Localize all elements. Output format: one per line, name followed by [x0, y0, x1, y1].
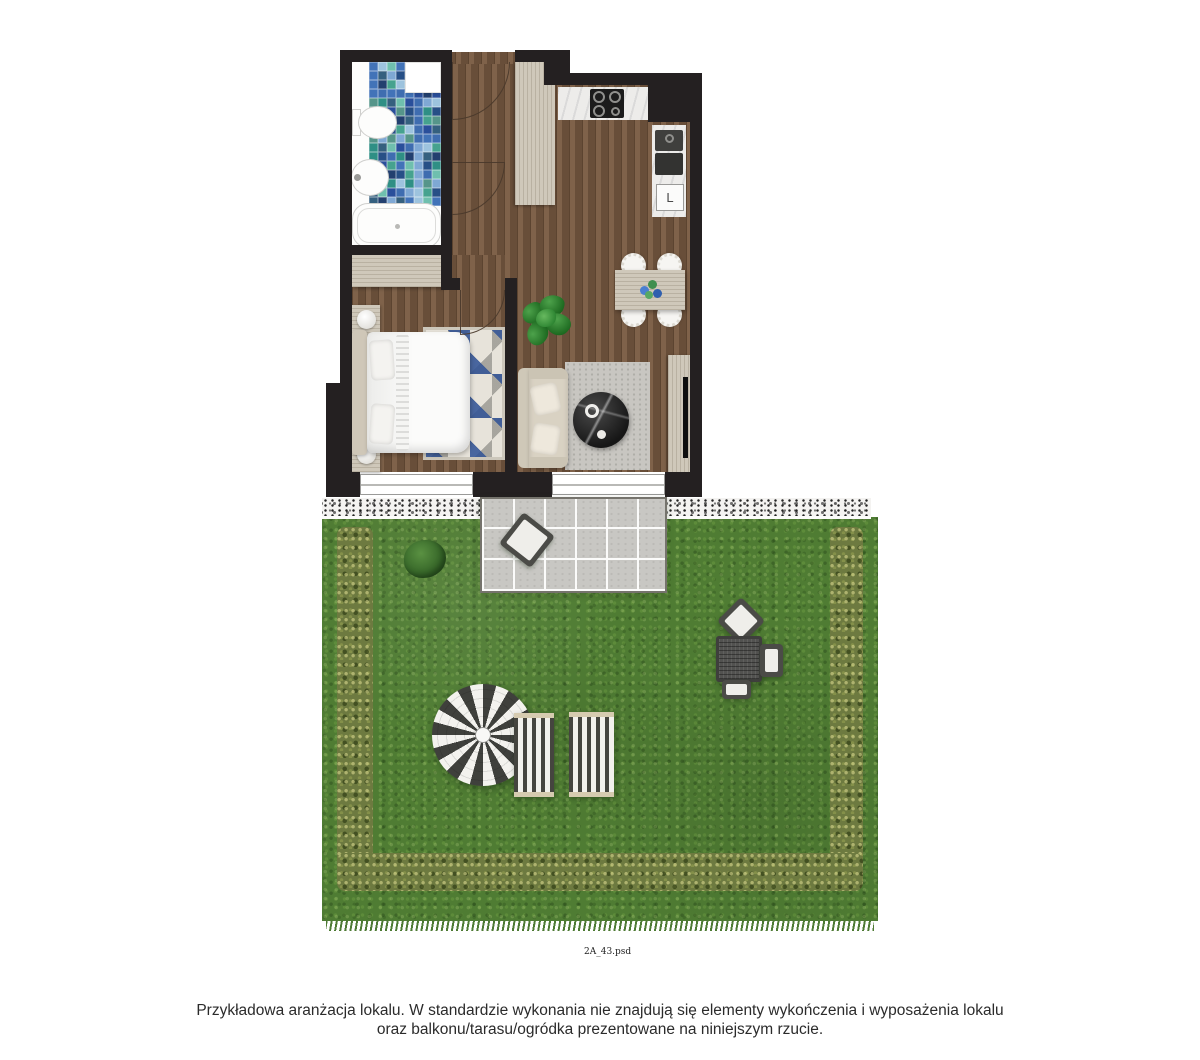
monstera-plant	[522, 295, 570, 347]
toilet-bowl	[358, 106, 397, 139]
mosaic-tile	[414, 134, 423, 143]
mosaic-tile	[387, 89, 396, 98]
burner	[593, 91, 605, 103]
kitchen-corner-cabinet	[648, 85, 690, 122]
mosaic-tile	[414, 179, 423, 188]
page: L	[0, 0, 1200, 1060]
hedge-left	[337, 527, 373, 885]
mosaic-tile	[369, 62, 378, 71]
wall-bath-bottom	[340, 245, 441, 255]
mosaic-tile	[396, 143, 405, 152]
mosaic-tile	[405, 143, 414, 152]
kitchen-faucet	[665, 134, 674, 143]
garden-chair-cushion	[765, 649, 778, 672]
bed-headboard	[352, 330, 367, 455]
garden-chair-bottom	[722, 680, 751, 699]
mosaic-tile	[378, 89, 387, 98]
garden-chair-cushion	[726, 684, 747, 695]
bed-ruffle	[396, 334, 409, 451]
deck-chair-left	[514, 713, 554, 797]
mosaic-tile	[369, 80, 378, 89]
sofa-pillow-bottom	[530, 422, 561, 456]
mosaic-tile	[369, 143, 378, 152]
mosaic-tile	[396, 170, 405, 179]
umbrella-center	[475, 727, 491, 743]
mosaic-tile	[396, 188, 405, 197]
mosaic-tile	[423, 107, 432, 116]
fridge: L	[656, 184, 684, 211]
mosaic-tile	[423, 188, 432, 197]
wall-top-kitchen	[556, 73, 702, 85]
mosaic-tile	[423, 125, 432, 134]
mosaic-tile	[405, 98, 414, 107]
mosaic-tile	[414, 170, 423, 179]
mosaic-tile	[432, 125, 441, 134]
mosaic-tile	[414, 188, 423, 197]
mosaic-tile	[396, 89, 405, 98]
washing-machine	[405, 62, 441, 93]
mosaic-tile	[414, 152, 423, 161]
mosaic-tile	[396, 107, 405, 116]
sofa-armrest-top	[529, 368, 568, 379]
wall-left-bump	[326, 383, 342, 478]
mosaic-tile	[423, 143, 432, 152]
wall-bath-divider	[441, 50, 452, 290]
mosaic-tile	[387, 152, 396, 161]
table-flowers	[638, 278, 664, 302]
mosaic-tile	[396, 116, 405, 125]
mosaic-tile	[432, 134, 441, 143]
coffee-table-tray	[585, 404, 599, 418]
garden-table	[716, 636, 762, 682]
gravel-strip-left	[322, 498, 480, 519]
mosaic-tile	[432, 152, 441, 161]
mosaic-tile	[396, 71, 405, 80]
mosaic-tile	[387, 98, 396, 107]
mosaic-tile	[423, 161, 432, 170]
mosaic-tile	[423, 152, 432, 161]
mosaic-tile	[396, 134, 405, 143]
mosaic-tile	[423, 98, 432, 107]
mosaic-tile	[396, 80, 405, 89]
disclaimer-line-2: oraz balkonu/tarasu/ogródka prezentowane…	[0, 1020, 1200, 1039]
disclaimer-line-1: Przykładowa aranżacja lokalu. W standard…	[0, 1001, 1200, 1020]
floor-plan: L	[0, 0, 1200, 500]
plan-file-label: 2A_43.psd	[584, 947, 631, 957]
mosaic-tile	[405, 116, 414, 125]
fridge-label: L	[666, 190, 673, 205]
mosaic-tile	[387, 71, 396, 80]
bed-pillow-bottom	[369, 403, 396, 445]
mosaic-tile	[405, 107, 414, 116]
mosaic-tile	[405, 134, 414, 143]
mosaic-tile	[387, 62, 396, 71]
mosaic-tile	[405, 161, 414, 170]
flower	[648, 280, 657, 289]
coffee-table-candle	[597, 430, 606, 439]
mosaic-tile	[396, 179, 405, 188]
grass-fringe	[326, 919, 874, 931]
gravel-strip-right	[667, 498, 871, 519]
mosaic-tile	[432, 170, 441, 179]
cooktop	[590, 89, 624, 118]
mosaic-tile	[414, 107, 423, 116]
mosaic-tile	[405, 179, 414, 188]
mosaic-tile	[405, 125, 414, 134]
mosaic-tile	[432, 161, 441, 170]
burner	[593, 105, 605, 117]
coffee-table	[573, 392, 629, 448]
wall-top-left	[340, 50, 442, 62]
flower	[653, 289, 662, 298]
mosaic-tile	[378, 152, 387, 161]
mosaic-tile	[396, 62, 405, 71]
tv	[683, 377, 688, 458]
mosaic-tile	[369, 89, 378, 98]
deck-chair-right	[569, 712, 614, 797]
burner	[609, 91, 621, 103]
mosaic-tile	[396, 161, 405, 170]
mosaic-tile	[423, 134, 432, 143]
mosaic-tile	[396, 98, 405, 107]
mosaic-tile	[405, 188, 414, 197]
mosaic-tile	[414, 161, 423, 170]
sink-faucet	[354, 174, 361, 181]
mosaic-tile	[387, 161, 396, 170]
mosaic-tile	[378, 71, 387, 80]
sofa-armrest-bottom	[529, 457, 568, 468]
wall-bedroom-stub	[448, 278, 460, 290]
mosaic-tile	[423, 179, 432, 188]
mosaic-tile	[405, 170, 414, 179]
garden-chair-right	[760, 644, 783, 677]
bed-pillow-top	[369, 339, 396, 381]
mosaic-tile	[432, 107, 441, 116]
mosaic-tile	[369, 71, 378, 80]
mosaic-tile	[387, 80, 396, 89]
mosaic-tile	[432, 143, 441, 152]
dresser	[352, 253, 445, 287]
disclaimer-caption: Przykładowa aranżacja lokalu. W standard…	[0, 1001, 1200, 1040]
bathtub-drain	[395, 224, 400, 229]
bathtub	[352, 203, 441, 248]
mosaic-tile	[414, 98, 423, 107]
garden-chair-cushion	[724, 604, 758, 638]
mosaic-tile	[396, 125, 405, 134]
wall-right	[690, 73, 702, 478]
window-pane-line	[361, 484, 472, 486]
mosaic-tile	[387, 143, 396, 152]
mosaic-tile	[405, 152, 414, 161]
hedge-bottom	[337, 853, 863, 891]
mosaic-tile	[414, 125, 423, 134]
mosaic-tile	[432, 179, 441, 188]
mosaic-tile	[423, 170, 432, 179]
mosaic-tile	[414, 116, 423, 125]
mosaic-tile	[378, 80, 387, 89]
kitchen-sink-basin	[655, 153, 683, 175]
mosaic-tile	[378, 62, 387, 71]
garden	[0, 490, 1200, 950]
mosaic-tile	[414, 143, 423, 152]
mosaic-tile	[432, 116, 441, 125]
window-pane-line	[553, 484, 664, 486]
mosaic-tile	[396, 152, 405, 161]
flower	[645, 291, 653, 299]
burner	[611, 107, 620, 116]
mosaic-tile	[432, 98, 441, 107]
mosaic-tile	[432, 188, 441, 197]
mosaic-tile	[423, 116, 432, 125]
mosaic-tile	[378, 143, 387, 152]
hedge-right	[830, 527, 863, 885]
lamp-top	[357, 310, 376, 329]
mosaic-tile	[387, 188, 396, 197]
wall-bedroom-divider	[505, 278, 517, 472]
